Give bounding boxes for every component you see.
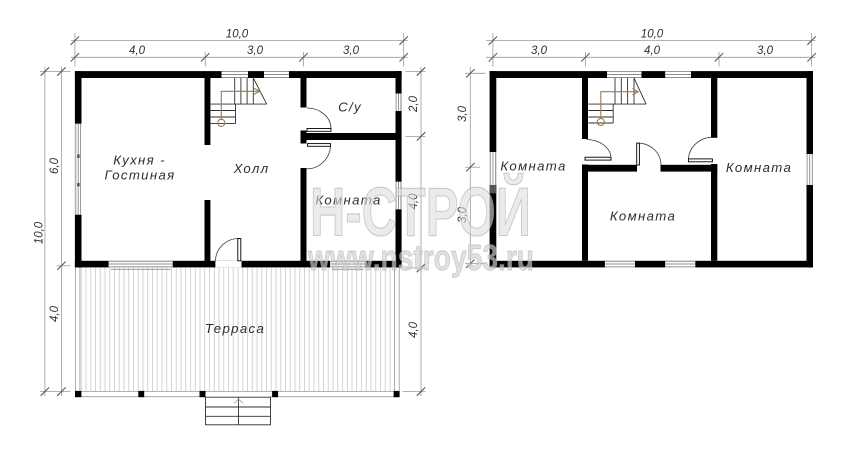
svg-text:Комната: Комната bbox=[726, 160, 792, 175]
svg-text:10,0: 10,0 bbox=[33, 221, 45, 244]
svg-text:3,0: 3,0 bbox=[343, 45, 360, 57]
svg-text:www.nstroy53.ru: www.nstroy53.ru bbox=[307, 237, 534, 278]
svg-text:10,0: 10,0 bbox=[226, 29, 249, 41]
svg-text:Терраса: Терраса bbox=[205, 321, 265, 336]
svg-text:2,0: 2,0 bbox=[408, 95, 420, 113]
svg-text:4,0: 4,0 bbox=[49, 305, 61, 322]
svg-text:3,0: 3,0 bbox=[531, 45, 548, 57]
svg-text:6,0: 6,0 bbox=[49, 157, 61, 174]
svg-text:4,0: 4,0 bbox=[644, 45, 661, 57]
svg-text:Комната: Комната bbox=[500, 159, 566, 174]
svg-text:10,0: 10,0 bbox=[641, 29, 664, 41]
svg-text:Холл: Холл bbox=[233, 161, 270, 176]
svg-text:Гостиная: Гостиная bbox=[104, 168, 175, 183]
svg-text:4,0: 4,0 bbox=[408, 321, 420, 338]
svg-text:3,0: 3,0 bbox=[457, 105, 469, 122]
svg-text:4,0: 4,0 bbox=[129, 45, 146, 57]
svg-text:Комната: Комната bbox=[610, 209, 676, 224]
svg-text:3,0: 3,0 bbox=[247, 45, 264, 57]
svg-text:С/у: С/у bbox=[338, 100, 362, 115]
svg-text:3,0: 3,0 bbox=[757, 45, 774, 57]
svg-text:Кухня -: Кухня - bbox=[113, 153, 166, 168]
